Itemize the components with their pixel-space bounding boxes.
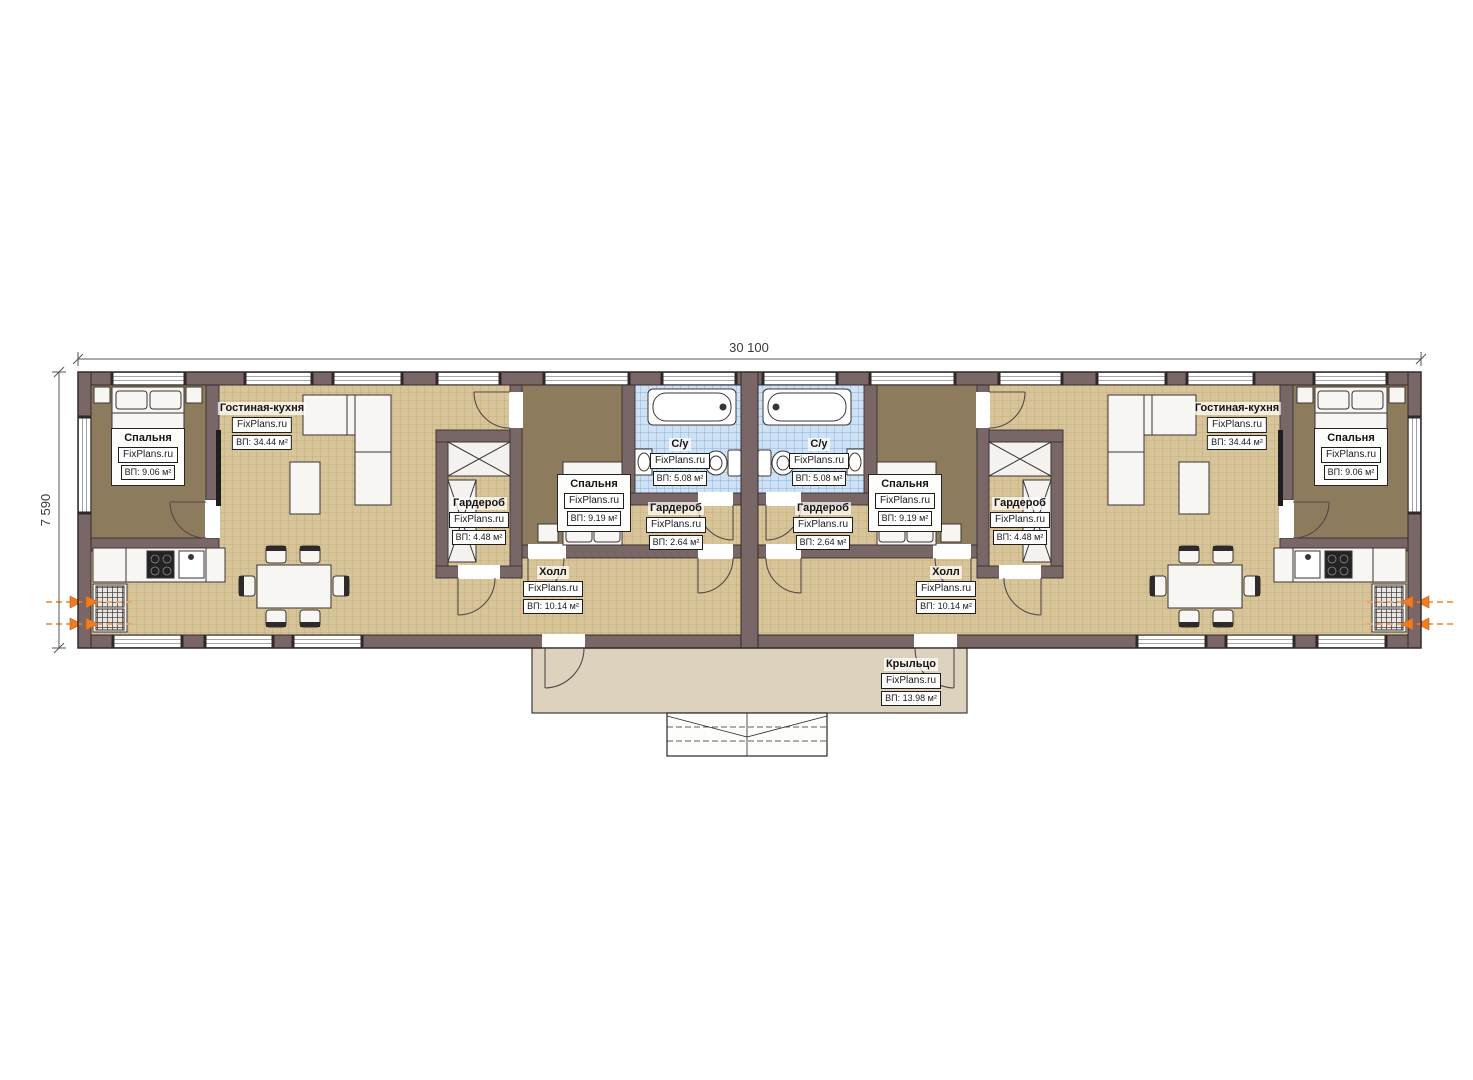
brand-watermark: FixPlans.ru: [1321, 447, 1381, 463]
room-area: ВП: 2.64 м²: [796, 535, 851, 550]
room-name: Гардероб: [451, 497, 507, 510]
room-label-left-bathroom: С/у FixPlans.ru ВП: 5.08 м²: [650, 438, 710, 486]
room-area: ВП: 9.06 м²: [121, 465, 176, 480]
room-name: Гостиная-кухня: [1193, 402, 1281, 415]
room-area: ВП: 10.14 м²: [916, 599, 976, 614]
brand-watermark: FixPlans.ru: [916, 581, 976, 597]
bathtub: [648, 389, 736, 425]
room-area: ВП: 9.06 м²: [1324, 465, 1379, 480]
room-label-right-bathroom: С/у FixPlans.ru ВП: 5.08 м²: [789, 438, 849, 486]
room-area: ВП: 9.19 м²: [567, 511, 622, 526]
dimension-width-label: 30 100: [729, 340, 769, 355]
room-area: ВП: 10.14 м²: [523, 599, 583, 614]
brand-watermark: FixPlans.ru: [232, 417, 292, 433]
room-name: С/у: [808, 438, 829, 451]
room-label-right-bedroom-mid: Спальня FixPlans.ru ВП: 9.19 м²: [868, 474, 942, 532]
room-area: ВП: 4.48 м²: [452, 530, 507, 545]
kitchen-counter: [93, 548, 225, 582]
room-label-right-hall: Холл FixPlans.ru ВП: 10.14 м²: [916, 566, 976, 614]
room-area: ВП: 2.64 м²: [649, 535, 704, 550]
toilet: [705, 450, 741, 476]
brand-watermark: FixPlans.ru: [789, 453, 849, 469]
right-unit: [758, 372, 1453, 688]
room-label-right-living-kitchen: Гостиная-кухня FixPlans.ru ВП: 34.44 м²: [1193, 402, 1281, 450]
brand-watermark: FixPlans.ru: [793, 517, 853, 533]
room-name: Спальня: [879, 478, 931, 491]
dimension-top: 30 100: [73, 340, 1426, 366]
room-name: С/у: [669, 438, 690, 451]
room-area: ВП: 4.48 м²: [993, 530, 1048, 545]
room-name: Спальня: [1325, 432, 1377, 445]
windows-bottom: [112, 635, 364, 648]
room-name: Крыльцо: [884, 658, 938, 671]
room-label-left-hall: Холл FixPlans.ru ВП: 10.14 м²: [523, 566, 583, 614]
coffee-table: [290, 462, 320, 514]
brand-watermark: FixPlans.ru: [650, 453, 710, 469]
brand-watermark: FixPlans.ru: [875, 493, 935, 509]
room-name: Гардероб: [992, 497, 1048, 510]
room-label-left-wardrobe-small: Гардероб FixPlans.ru ВП: 2.64 м²: [646, 502, 706, 550]
room-name: Спальня: [568, 478, 620, 491]
room-name: Холл: [537, 566, 569, 579]
dimension-left: 7 590: [38, 367, 66, 653]
room-name: Спальня: [122, 432, 174, 445]
room-name: Гостиная-кухня: [218, 402, 306, 415]
room-area: ВП: 9.19 м²: [878, 511, 933, 526]
room-area: ВП: 5.08 м²: [653, 471, 708, 486]
room-label-right-wardrobe-large: Гардероб FixPlans.ru ВП: 4.48 м²: [990, 497, 1050, 545]
left-unit: [46, 372, 741, 688]
brand-watermark: FixPlans.ru: [1207, 417, 1267, 433]
room-label-left-wardrobe-large: Гардероб FixPlans.ru ВП: 4.48 м²: [449, 497, 509, 545]
room-label-left-bedroom-mid: Спальня FixPlans.ru ВП: 9.19 м²: [557, 474, 631, 532]
room-area: ВП: 13.98 м²: [881, 691, 941, 706]
room-area: ВП: 5.08 м²: [792, 471, 847, 486]
brand-watermark: FixPlans.ru: [523, 581, 583, 597]
room-label-right-bedroom-top: Спальня FixPlans.ru ВП: 9.06 м²: [1314, 428, 1388, 486]
floor-plan-drawing: 30 100 7 590: [0, 0, 1473, 1080]
brand-watermark: FixPlans.ru: [118, 447, 178, 463]
brand-watermark: FixPlans.ru: [990, 512, 1050, 528]
room-label-left-living-kitchen: Гостиная-кухня FixPlans.ru ВП: 34.44 м²: [218, 402, 306, 450]
room-area: ВП: 34.44 м²: [232, 435, 292, 450]
brand-watermark: FixPlans.ru: [449, 512, 509, 528]
room-name: Холл: [930, 566, 962, 579]
brand-watermark: FixPlans.ru: [881, 673, 941, 689]
party-wall: [741, 372, 758, 648]
brand-watermark: FixPlans.ru: [646, 517, 706, 533]
room-label-right-wardrobe-small: Гардероб FixPlans.ru ВП: 2.64 м²: [793, 502, 853, 550]
window-side: [78, 416, 91, 515]
brand-watermark: FixPlans.ru: [564, 493, 624, 509]
porch-steps: [667, 713, 827, 756]
room-area: ВП: 34.44 м²: [1207, 435, 1267, 450]
floor-plan-page: 30 100 7 590 Спальня FixPlans.ru ВП: 9.0…: [0, 0, 1473, 1080]
dimension-height-label: 7 590: [38, 494, 53, 527]
room-label-porch: Крыльцо FixPlans.ru ВП: 13.98 м²: [881, 658, 941, 706]
room-name: Гардероб: [648, 502, 704, 515]
room-label-left-bedroom-top: Спальня FixPlans.ru ВП: 9.06 м²: [111, 428, 185, 486]
room-name: Гардероб: [795, 502, 851, 515]
